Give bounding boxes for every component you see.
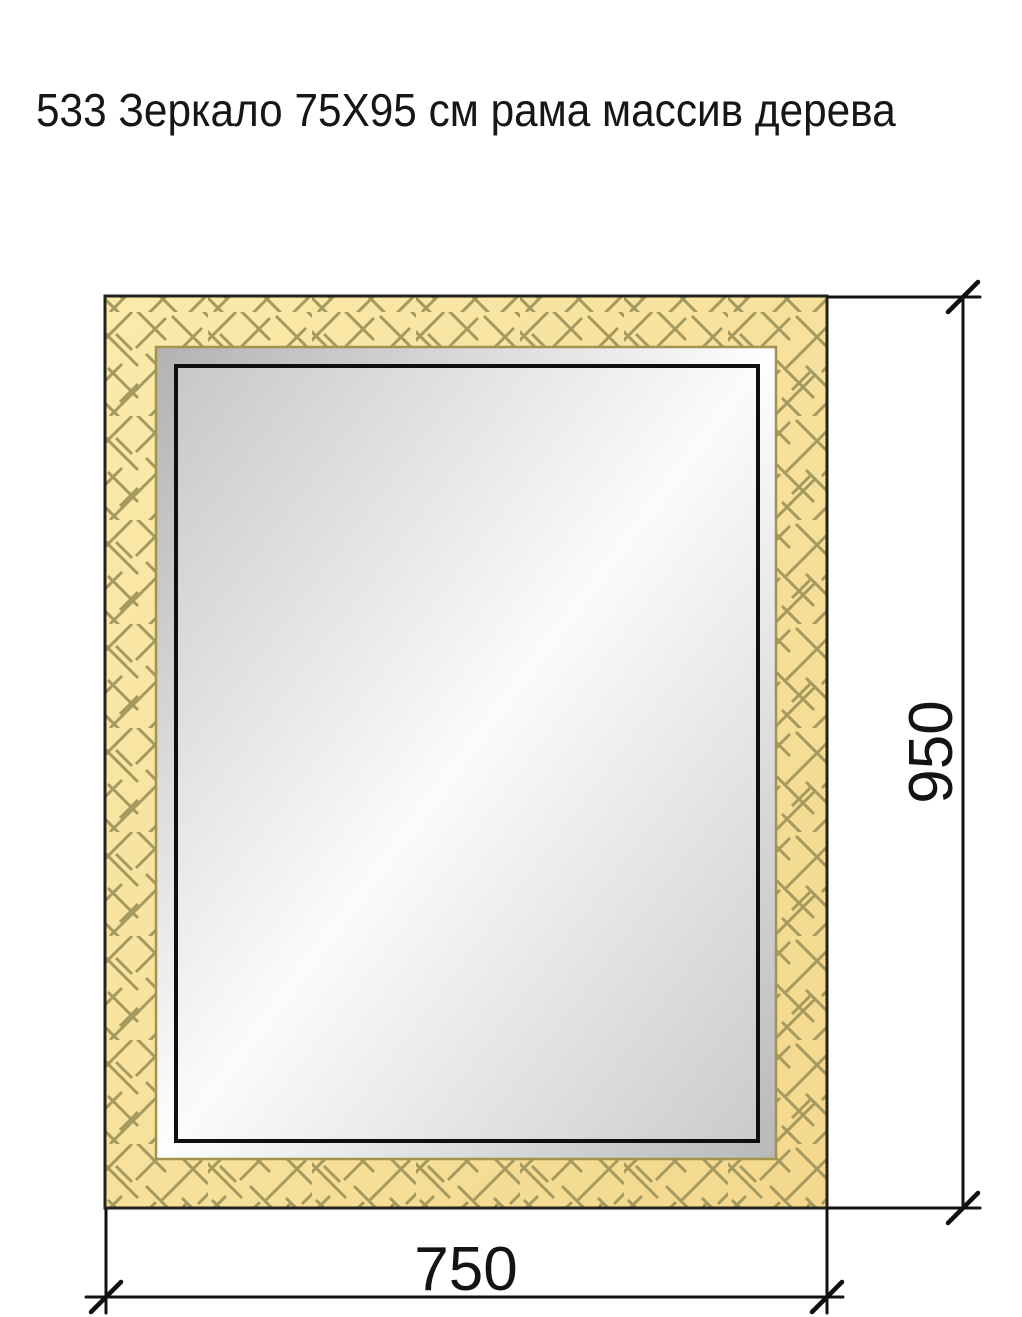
height-dimension-label: 950	[897, 700, 966, 803]
mirror-glass	[176, 366, 758, 1141]
technical-drawing: 750 950	[0, 0, 1022, 1317]
mirror-drawing	[105, 296, 827, 1208]
drawing-page: 533 Зеркало 75X95 см рама массив дерева	[0, 0, 1022, 1317]
width-dimension-label: 750	[414, 1235, 517, 1304]
